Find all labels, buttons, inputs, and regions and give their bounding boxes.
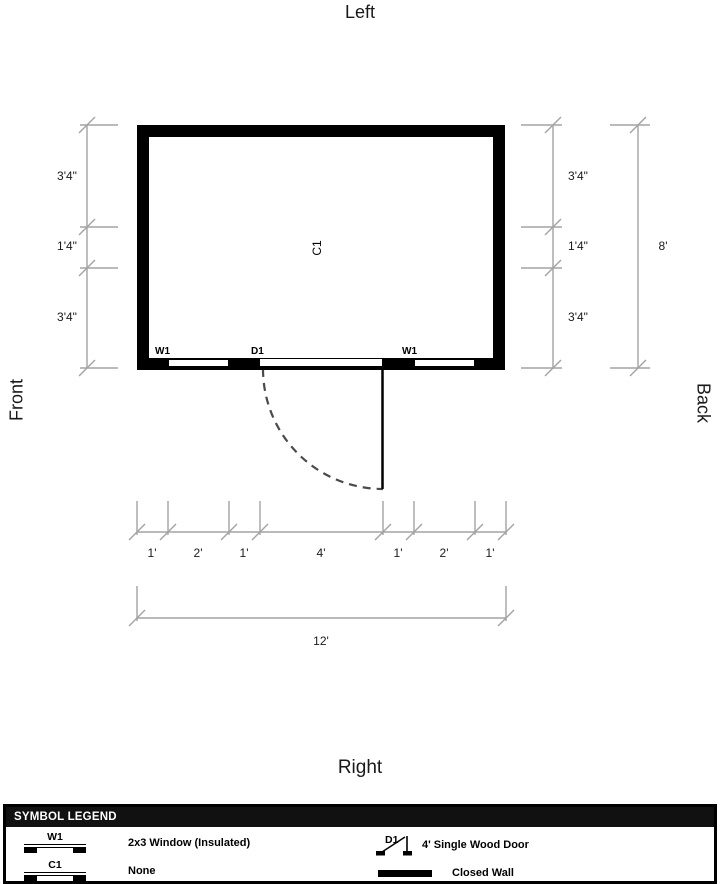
dim-left-mid: 1'4" <box>57 239 77 253</box>
legend-item-door: D1 4' Single Wood Door <box>376 833 529 857</box>
legend-item-label: None <box>128 865 156 877</box>
dim-bottom-4: 1' <box>394 546 403 560</box>
dim-chain-right <box>521 117 562 376</box>
dim-bottom-2: 1' <box>240 546 249 560</box>
legend-header: SYMBOL LEGEND <box>6 807 714 827</box>
closed-wall-icon <box>378 870 432 877</box>
dim-right-mid: 1'4" <box>568 239 588 253</box>
dim-left-top: 3'4" <box>57 169 77 183</box>
orientation-label-left: Left <box>0 2 720 23</box>
legend-title: SYMBOL LEGEND <box>14 811 117 823</box>
symbol-legend: SYMBOL LEGEND W1 2x3 Window (Insulated) <box>3 804 717 884</box>
window-glyph <box>24 875 86 881</box>
dim-bottom-total: 12' <box>313 634 329 648</box>
window-w1-right <box>414 359 475 367</box>
dim-bottom-6: 1' <box>486 546 495 560</box>
orientation-label-front: Front <box>7 379 28 421</box>
window-glyph <box>24 847 86 853</box>
legend-item-label: Closed Wall <box>452 867 514 879</box>
dim-left-bottom: 3'4" <box>57 310 77 324</box>
door-symbol-icon: D1 <box>376 833 412 857</box>
orientation-label-right: Right <box>0 757 720 779</box>
legend-symbol-code: D1 <box>385 834 398 846</box>
window-w1-left <box>168 359 229 367</box>
legend-symbol-code: C1 <box>24 860 86 873</box>
room-center-label: C1 <box>310 240 324 255</box>
dim-right-top: 3'4" <box>568 169 588 183</box>
dim-right-total: 8' <box>659 239 668 253</box>
dim-total-right <box>610 117 650 376</box>
dim-bottom-3: 4' <box>317 546 326 560</box>
floorplan-page: Left Right Front Back <box>0 0 720 884</box>
dim-bottom-5: 2' <box>440 546 449 560</box>
door-d1-opening <box>259 358 383 367</box>
dim-total-bottom <box>129 586 514 626</box>
dim-right-bottom: 3'4" <box>568 310 588 324</box>
dim-chain-left <box>79 117 118 376</box>
legend-item-c1: C1 None <box>24 860 156 881</box>
window-left-label: W1 <box>155 346 170 357</box>
dim-bottom-1: 2' <box>194 546 203 560</box>
door-label: D1 <box>251 346 264 357</box>
legend-body: W1 2x3 Window (Insulated) D1 4' Single W… <box>6 827 714 881</box>
dim-bottom-0: 1' <box>148 546 157 560</box>
legend-item-label: 4' Single Wood Door <box>422 839 529 851</box>
legend-symbol-code: W1 <box>24 832 86 845</box>
orientation-label-back: Back <box>693 383 714 423</box>
legend-item-label: 2x3 Window (Insulated) <box>128 837 250 849</box>
dim-chain-bottom <box>129 501 514 540</box>
door-swing-arc <box>263 369 383 489</box>
legend-item-closed-wall: Closed Wall <box>378 867 514 879</box>
window-symbol-icon: W1 <box>24 832 86 853</box>
window-right-label: W1 <box>402 346 417 357</box>
legend-item-window: W1 2x3 Window (Insulated) <box>24 832 250 853</box>
c1-symbol-icon: C1 <box>24 860 86 881</box>
